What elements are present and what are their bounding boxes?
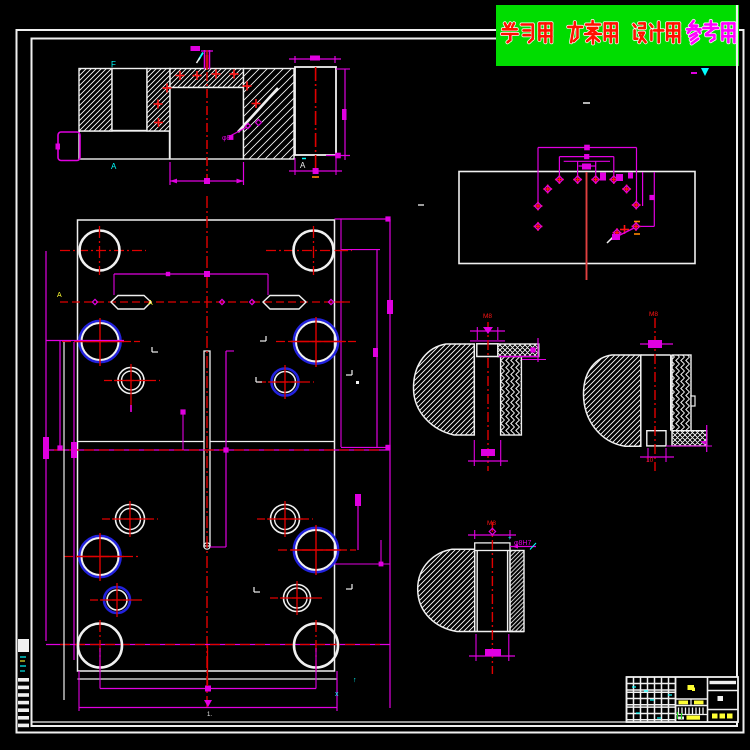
svg-text:x: x [335, 691, 339, 698]
svg-text:A: A [111, 162, 117, 171]
svg-text:10: 10 [646, 457, 654, 464]
svg-text:φ8: φ8 [222, 135, 231, 142]
svg-text:φ8H7: φ8H7 [514, 540, 531, 547]
svg-text:M8: M8 [483, 313, 492, 320]
svg-text:F: F [111, 60, 116, 69]
svg-text:↑: ↑ [353, 677, 357, 684]
svg-text:M8: M8 [487, 520, 496, 527]
svg-text:A: A [300, 161, 306, 170]
svg-text:1.: 1. [207, 712, 212, 718]
svg-text:M8: M8 [649, 311, 658, 318]
svg-text:+: + [508, 536, 512, 542]
svg-text:A: A [148, 300, 153, 307]
svg-text:A: A [57, 292, 62, 299]
